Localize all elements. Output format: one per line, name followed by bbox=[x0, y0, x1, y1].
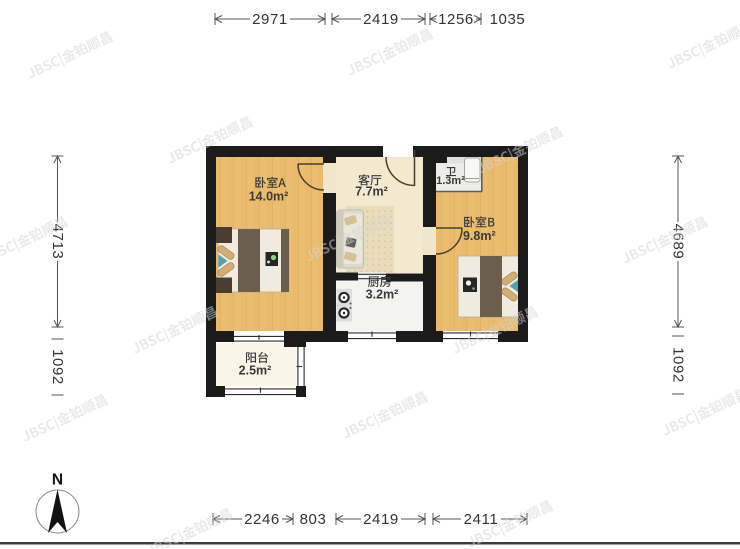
svg-text:2246: 2246 bbox=[244, 511, 280, 528]
svg-text:2419: 2419 bbox=[363, 11, 399, 28]
svg-text:2.5m²: 2.5m² bbox=[239, 364, 272, 378]
svg-text:1256: 1256 bbox=[438, 11, 474, 28]
svg-text:14.0m²: 14.0m² bbox=[249, 190, 289, 204]
svg-text:1.3m²: 1.3m² bbox=[436, 175, 465, 187]
svg-text:N: N bbox=[52, 472, 63, 489]
svg-text:9.8m²: 9.8m² bbox=[463, 229, 496, 243]
svg-text:2971: 2971 bbox=[252, 11, 288, 28]
svg-text:803: 803 bbox=[300, 511, 327, 528]
svg-text:2411: 2411 bbox=[464, 511, 499, 528]
svg-text:1092: 1092 bbox=[49, 349, 66, 385]
svg-text:1035: 1035 bbox=[490, 11, 526, 28]
svg-text:7.7m²: 7.7m² bbox=[355, 185, 388, 199]
svg-text:1092: 1092 bbox=[670, 347, 687, 383]
svg-text:3.2m²: 3.2m² bbox=[366, 288, 399, 302]
svg-text:2419: 2419 bbox=[363, 511, 399, 528]
